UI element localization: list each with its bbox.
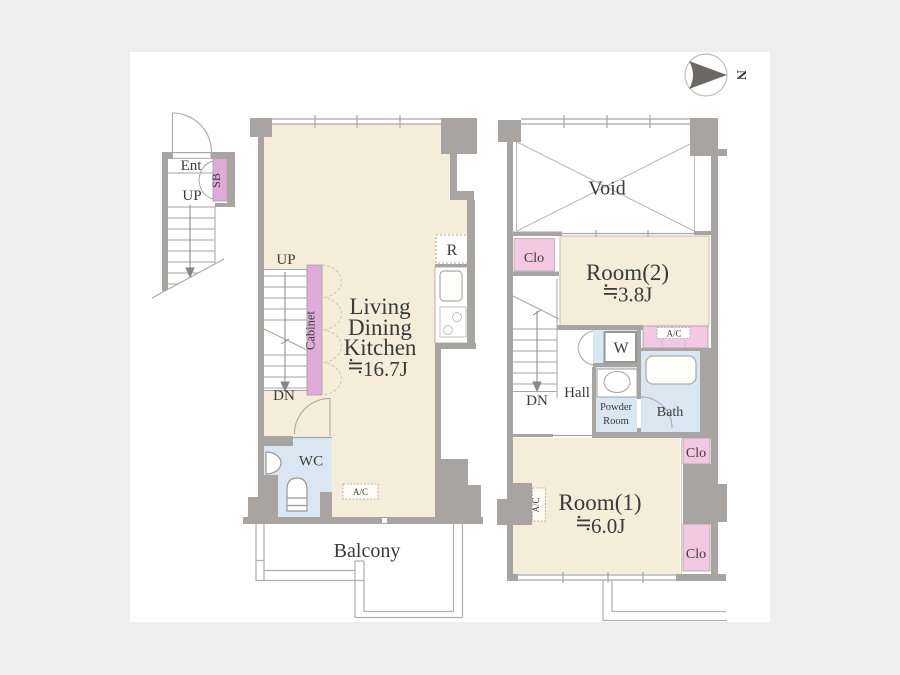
svg-text:Room: Room <box>603 416 629 427</box>
svg-text:A/C: A/C <box>531 497 541 512</box>
svg-text:DN: DN <box>273 388 295 404</box>
svg-text:Cabinet: Cabinet <box>304 311 318 350</box>
svg-text:Powder: Powder <box>600 402 633 413</box>
svg-text:UP: UP <box>182 188 201 204</box>
svg-text:W: W <box>613 340 629 357</box>
svg-text:WC: WC <box>299 454 323 470</box>
svg-text:DN: DN <box>526 393 548 409</box>
svg-text:16.7J: 16.7J <box>363 357 408 381</box>
svg-text:Clo: Clo <box>524 251 544 266</box>
svg-text:Hall: Hall <box>564 385 590 401</box>
svg-text:Clo: Clo <box>686 547 706 562</box>
svg-text:Bath: Bath <box>657 405 683 420</box>
svg-text:SB: SB <box>209 173 223 188</box>
svg-text:Ent: Ent <box>181 158 203 174</box>
svg-text:Room(1): Room(1) <box>558 490 641 515</box>
svg-text:3.8J: 3.8J <box>618 283 652 307</box>
svg-text:Balcony: Balcony <box>334 540 401 562</box>
svg-text:A/C: A/C <box>666 329 681 339</box>
svg-text:N: N <box>733 70 748 80</box>
svg-text:Room(2): Room(2) <box>586 260 669 285</box>
svg-text:UP: UP <box>276 252 295 268</box>
svg-text:A/C: A/C <box>353 487 368 497</box>
svg-text:Void: Void <box>588 178 625 200</box>
svg-text:6.0J: 6.0J <box>591 514 625 538</box>
svg-text:R: R <box>447 242 458 259</box>
svg-text:Clo: Clo <box>686 446 706 461</box>
